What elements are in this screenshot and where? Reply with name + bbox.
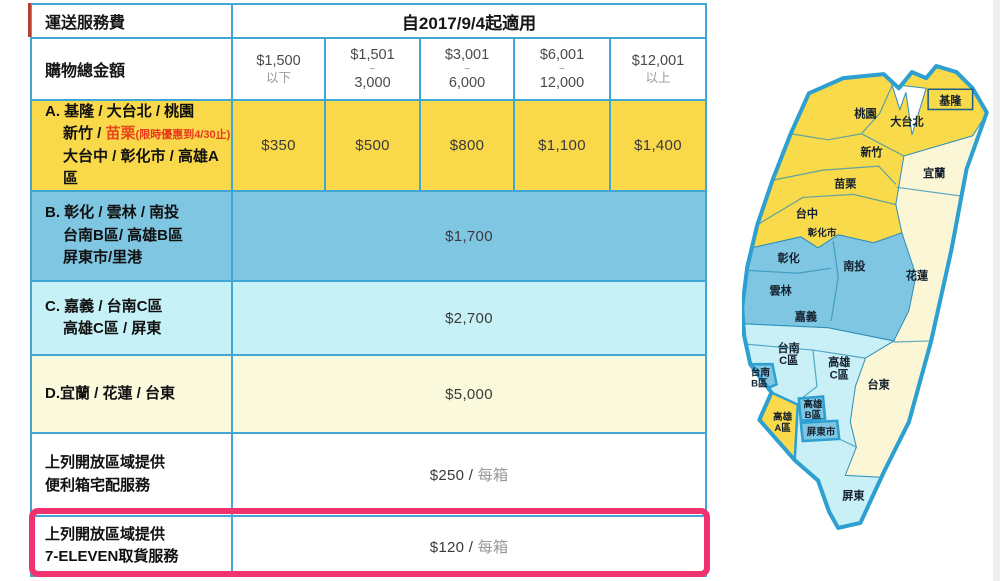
zone-a-line3: 大台中 / 彰化市 / 高雄A區 — [45, 146, 231, 191]
zone-a-promo-note: (限時優惠到4/30止) — [136, 129, 231, 141]
right-edge-strip — [993, 0, 1000, 581]
shipping-fee-table: 運送服務費 自2017/9/4起適用 購物總金額 $1,500 以下 $1,50… — [30, 3, 707, 577]
seven-eleven-price: $120 / — [430, 539, 478, 556]
zone-a-fee: $800 — [450, 137, 485, 154]
zone-b-row: B. 彰化 / 雲林 / 南投 台南B區/ 高雄B區 屏東市/里港 $1,700 — [32, 190, 705, 280]
zone-a-fee: $350 — [261, 137, 296, 154]
seven-eleven-line2: 7-ELEVEN取貨服務 — [45, 546, 178, 569]
map-label-changhua: 彰化 — [778, 251, 800, 265]
map-label-miaoli: 苗栗 — [834, 176, 857, 190]
box-delivery-line2: 便利箱宅配服務 — [45, 475, 165, 498]
box-delivery-label: 上列開放區域提供 便利箱宅配服務 — [45, 452, 165, 497]
zone-c-label-cell: C. 嘉義 / 台南C區 高雄C區 / 屏東 — [32, 282, 231, 354]
tier-label: 購物總金額 — [45, 57, 125, 81]
tier-amount: $6,001 — [540, 46, 584, 64]
map-label-kaohsiung-a: 高雄 — [773, 411, 793, 423]
map-label-tainan-b: 台南 — [751, 366, 771, 378]
zone-a-fee: $1,400 — [634, 137, 682, 154]
box-delivery-row: 上列開放區域提供 便利箱宅配服務 $250 / 每箱 — [32, 432, 705, 515]
tier-cell: $12,001 以上 — [609, 39, 705, 99]
tier-cell: $1,501 ~ 3,000 — [324, 39, 419, 99]
box-delivery-label-cell: 上列開放區域提供 便利箱宅配服務 — [32, 434, 231, 515]
map-label-kaohsiung-c2: C區 — [830, 368, 849, 381]
tier-tilde: ~ — [464, 65, 470, 74]
zone-b-fee: $1,700 — [445, 228, 493, 245]
zone-c-fee-cell: $2,700 — [231, 282, 705, 354]
map-label-chiayi: 嘉義 — [794, 310, 817, 324]
tier-amount: $12,001 — [632, 52, 684, 70]
map-label-taitung: 台東 — [868, 377, 891, 391]
zone-b-fee-cell: $1,700 — [231, 192, 705, 280]
map-label-tainan-c2: C區 — [779, 354, 798, 367]
zone-b-label: B. 彰化 / 雲林 / 南投 台南B區/ 高雄B區 屏東市/里港 — [45, 202, 183, 270]
zone-d-label-cell: D.宜蘭 / 花蓮 / 台東 — [32, 356, 231, 432]
tier-cell: $6,001 ~ 12,000 — [513, 39, 609, 99]
zone-a-fee-cell: $500 — [324, 101, 419, 190]
taiwan-zone-map: 基隆 大台北 桃園 新竹 宜蘭 苗栗 台中 彰化市 彰化 南投 花蓮 雲林 嘉義… — [742, 64, 992, 534]
seven-eleven-fee: $120 / 每箱 — [430, 536, 509, 557]
table-header-row: 運送服務費 自2017/9/4起適用 — [32, 5, 705, 37]
seven-eleven-line1: 上列開放區域提供 — [45, 526, 165, 543]
map-label-greater-taipei: 大台北 — [890, 115, 924, 129]
box-delivery-unit: 每箱 — [478, 467, 509, 484]
seven-eleven-row: 上列開放區域提供 7-ELEVEN取貨服務 $120 / 每箱 — [32, 515, 705, 575]
zone-a-row: A. 基隆 / 大台北 / 桃園 新竹 / 苗栗(限時優惠到4/30止) 大台中… — [32, 99, 705, 190]
seven-eleven-label-cell: 上列開放區域提供 7-ELEVEN取貨服務 — [32, 517, 231, 575]
map-label-tainan-b2: B區 — [751, 378, 768, 389]
taiwan-map-svg: 基隆 大台北 桃園 新竹 宜蘭 苗栗 台中 彰化市 彰化 南投 花蓮 雲林 嘉義… — [742, 64, 992, 534]
zone-b-line1: B. 彰化 / 雲林 / 南投 — [45, 204, 179, 221]
zone-a-fee-cell: $350 — [231, 101, 324, 190]
zone-c-line1: C. 嘉義 / 台南C區 — [45, 298, 163, 315]
zone-a-label-cell: A. 基隆 / 大台北 / 桃園 新竹 / 苗栗(限時優惠到4/30止) 大台中… — [32, 101, 231, 190]
map-label-pingtung: 屏東 — [842, 489, 865, 503]
seven-eleven-label: 上列開放區域提供 7-ELEVEN取貨服務 — [45, 524, 178, 569]
zone-c-fee: $2,700 — [445, 310, 493, 327]
zone-b-label-cell: B. 彰化 / 雲林 / 南投 台南B區/ 高雄B區 屏東市/里港 — [32, 192, 231, 280]
map-label-hualien: 花蓮 — [906, 268, 929, 282]
tier-amount: 6,000 — [449, 74, 485, 92]
seven-eleven-unit: 每箱 — [478, 539, 509, 556]
tier-tilde: ~ — [370, 65, 376, 74]
map-label-pingtung-city: 屏東市 — [807, 426, 836, 438]
map-label-hsinchu: 新竹 — [860, 145, 882, 159]
zone-a-fee-cell: $1,100 — [513, 101, 609, 190]
box-delivery-fee-cell: $250 / 每箱 — [231, 434, 705, 515]
box-delivery-price: $250 / — [430, 467, 478, 484]
tier-cell: $1,500 以下 — [231, 39, 324, 99]
map-label-yilan: 宜蘭 — [923, 166, 945, 180]
zone-a-fee: $1,100 — [538, 137, 586, 154]
box-delivery-fee: $250 / 每箱 — [430, 464, 509, 485]
map-label-keelung: 基隆 — [938, 93, 962, 107]
zone-d-line1: D.宜蘭 / 花蓮 / 台東 — [45, 383, 175, 406]
tier-header-row: 購物總金額 $1,500 以下 $1,501 ~ 3,000 $3,001 ~ … — [32, 37, 705, 99]
zone-a-line2-red: 苗栗 — [106, 125, 136, 142]
tier-label-cell: 購物總金額 — [32, 39, 231, 99]
map-label-kaohsiung-a2: A區 — [774, 423, 791, 434]
zone-a-line1: A. 基隆 / 大台北 / 桃園 — [45, 103, 194, 120]
table-title-cell: 運送服務費 — [32, 5, 231, 37]
zone-c-line2: 高雄C區 / 屏東 — [45, 318, 163, 341]
tier-qualifier: 以下 — [266, 70, 291, 86]
zone-d-fee-cell: $5,000 — [231, 356, 705, 432]
map-label-taichung: 台中 — [796, 207, 818, 221]
zone-a-fee-cell: $800 — [419, 101, 513, 190]
tier-amount: $1,501 — [350, 46, 394, 64]
shipping-fee-infographic: 運送服務費 自2017/9/4起適用 購物總金額 $1,500 以下 $1,50… — [0, 0, 1000, 581]
seven-eleven-fee-cell: $120 / 每箱 — [231, 517, 705, 575]
zone-c-row: C. 嘉義 / 台南C區 高雄C區 / 屏東 $2,700 — [32, 280, 705, 354]
tier-qualifier: 以上 — [645, 70, 670, 86]
zone-a-label: A. 基隆 / 大台北 / 桃園 新竹 / 苗栗(限時優惠到4/30止) 大台中… — [45, 101, 231, 191]
effective-date: 自2017/9/4起適用 — [402, 9, 536, 34]
tier-amount: 3,000 — [354, 74, 390, 92]
map-label-tainan-c: 台南 — [778, 341, 800, 355]
zone-a-fee-cell: $1,400 — [609, 101, 705, 190]
zone-d-fee: $5,000 — [445, 386, 493, 403]
map-label-kaohsiung-b2: B區 — [805, 410, 822, 421]
zone-b-line2: 台南B區/ 高雄B區 — [45, 225, 183, 248]
map-regions — [742, 64, 992, 534]
zone-a-line2: 新竹 / 苗栗(限時優惠到4/30止) — [45, 123, 231, 146]
table-title: 運送服務費 — [45, 9, 125, 33]
zone-b-line3: 屏東市/里港 — [45, 247, 183, 270]
map-label-yunlin: 雲林 — [769, 283, 792, 297]
zone-a-fee: $500 — [355, 137, 390, 154]
tier-amount: $1,500 — [256, 52, 300, 70]
tier-tilde: ~ — [559, 65, 565, 74]
box-delivery-line1: 上列開放區域提供 — [45, 454, 165, 471]
map-label-kaohsiung-c: 高雄 — [828, 355, 850, 369]
map-label-taoyuan: 桃園 — [854, 107, 876, 121]
map-label-nantou: 南投 — [843, 259, 866, 273]
zone-a-line2-black: 新竹 / — [63, 125, 106, 142]
tier-amount: $3,001 — [445, 46, 489, 64]
map-label-changhua-city: 彰化市 — [808, 227, 837, 239]
tier-amount: 12,000 — [540, 74, 584, 92]
red-edge-mark — [28, 3, 31, 37]
zone-c-label: C. 嘉義 / 台南C區 高雄C區 / 屏東 — [45, 296, 163, 341]
tier-cell: $3,001 ~ 6,000 — [419, 39, 513, 99]
effective-date-cell: 自2017/9/4起適用 — [231, 5, 705, 37]
zone-d-row: D.宜蘭 / 花蓮 / 台東 $5,000 — [32, 354, 705, 432]
